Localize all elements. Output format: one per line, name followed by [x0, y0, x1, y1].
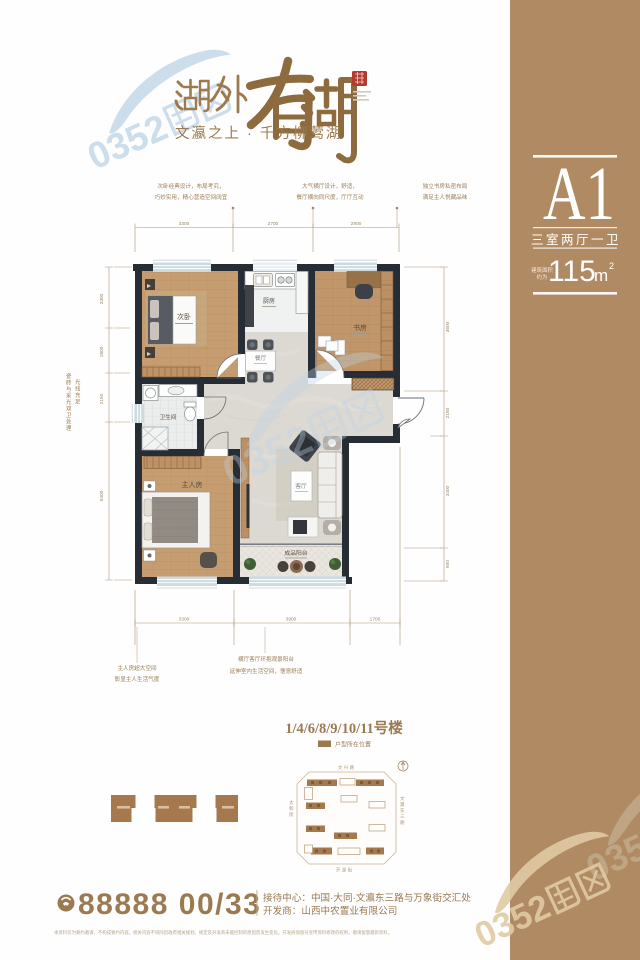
- svg-text:厨房: 厨房: [263, 297, 275, 305]
- svg-text:开 源 街: 开 源 街: [336, 867, 353, 874]
- svg-text:瓷砖与采光双卫处理: 瓷砖与采光双卫处理: [66, 372, 72, 432]
- svg-text:2150: 2150: [99, 393, 105, 404]
- svg-text:5400: 5400: [99, 490, 105, 501]
- svg-text:接待中心：中国·大同·文瀛东三路与万象街交汇处: 接待中心：中国·大同·文瀛东三路与万象街交汇处: [263, 892, 471, 904]
- svg-text:三室两厅一卫: 三室两厅一卫: [531, 232, 621, 247]
- svg-text:文瀛东三路: 文瀛东三路: [400, 795, 405, 826]
- svg-text:3300: 3300: [179, 221, 190, 227]
- svg-text:成品阳台: 成品阳台: [284, 549, 307, 557]
- svg-text:客厅: 客厅: [295, 482, 307, 490]
- svg-text:A1: A1: [543, 152, 615, 236]
- svg-text:横厅客厅环抱观景阳台: 横厅客厅环抱观景阳台: [238, 655, 294, 663]
- svg-text:3600: 3600: [445, 321, 451, 332]
- svg-text:m: m: [594, 266, 608, 285]
- svg-text:巧妙实用，精心营造空间阔宜: 巧妙实用，精心营造空间阔宜: [155, 193, 228, 201]
- svg-text:2900: 2900: [351, 221, 362, 227]
- svg-text:光线充足: 光线充足: [75, 378, 81, 406]
- svg-text:600: 600: [445, 560, 451, 568]
- svg-text:1800: 1800: [99, 346, 105, 357]
- svg-text:卫生间: 卫生间: [160, 413, 177, 421]
- svg-text:3400: 3400: [445, 485, 451, 496]
- svg-text:书房: 书房: [353, 323, 367, 332]
- svg-text:开发商：山西中农置业有限公司: 开发商：山西中农置业有限公司: [263, 905, 397, 917]
- svg-text:1700: 1700: [370, 617, 381, 623]
- svg-text:1/4/6/8/9/10/11号楼: 1/4/6/8/9/10/11号楼: [285, 719, 403, 737]
- svg-text:太和街: 太和街: [289, 799, 294, 818]
- svg-text:满足主人悦藏品味: 满足主人悦藏品味: [423, 193, 468, 201]
- svg-text:彰显主人生活气度: 彰显主人生活气度: [115, 675, 160, 683]
- svg-text:餐厅横向同尺度，厅厅互动: 餐厅横向同尺度，厅厅互动: [296, 193, 364, 201]
- svg-text:延伸室内生活空间，惬意舒适: 延伸室内生活空间，惬意舒适: [230, 667, 303, 675]
- svg-text:2700: 2700: [268, 221, 279, 227]
- svg-text:88888 00/33: 88888 00/33: [78, 888, 261, 921]
- svg-text:文瀛之上 · 千方柳莺湖: 文瀛之上 · 千方柳莺湖: [175, 124, 342, 142]
- svg-text:大气横厅设计，舒适，: 大气横厅设计，舒适，: [302, 182, 358, 190]
- svg-text:主人房: 主人房: [182, 480, 203, 489]
- svg-text:3900: 3900: [286, 617, 297, 623]
- svg-text:餐厅: 餐厅: [255, 354, 267, 362]
- svg-text:115: 115: [548, 255, 596, 288]
- svg-text:3300: 3300: [99, 293, 105, 304]
- svg-text:约为: 约为: [537, 273, 548, 281]
- svg-text:3300: 3300: [179, 617, 190, 623]
- svg-text:次卧: 次卧: [177, 312, 191, 321]
- svg-text:主人房超大空间: 主人房超大空间: [117, 664, 157, 672]
- svg-text:户型所在位置: 户型所在位置: [335, 741, 371, 749]
- svg-text:本资料仅为要约邀请，不构成要约内容。相关内容不排除因政府相关: 本资料仅为要约邀请，不构成要约内容。相关内容不排除因政府相关规划、规定及开发商未…: [54, 929, 392, 936]
- svg-text:2150: 2150: [445, 407, 451, 418]
- svg-text:独立书房私密布局: 独立书房私密布局: [423, 182, 468, 190]
- svg-text:文 兴 路: 文 兴 路: [338, 764, 355, 771]
- svg-text:次卧经典设计，布局考究，: 次卧经典设计，布局考究，: [157, 182, 224, 190]
- svg-text:2: 2: [609, 261, 614, 271]
